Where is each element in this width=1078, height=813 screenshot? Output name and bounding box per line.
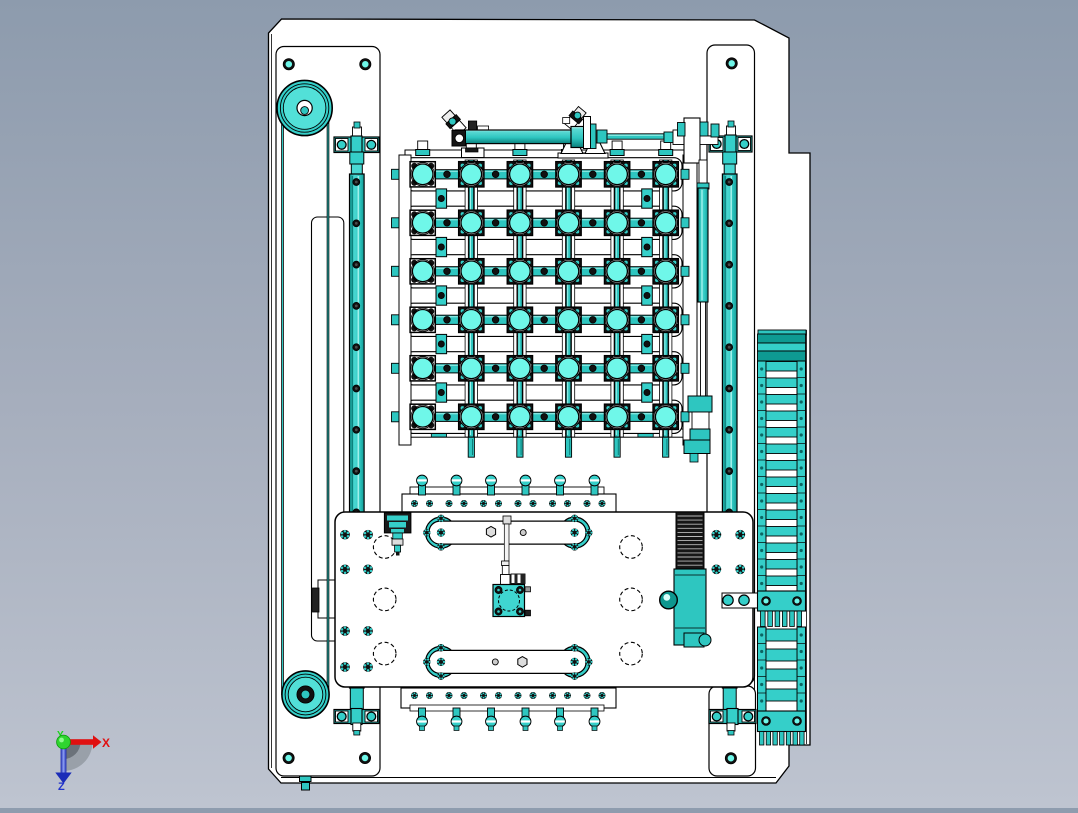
svg-text:X: X	[102, 736, 110, 750]
svg-text:Z: Z	[58, 781, 65, 793]
